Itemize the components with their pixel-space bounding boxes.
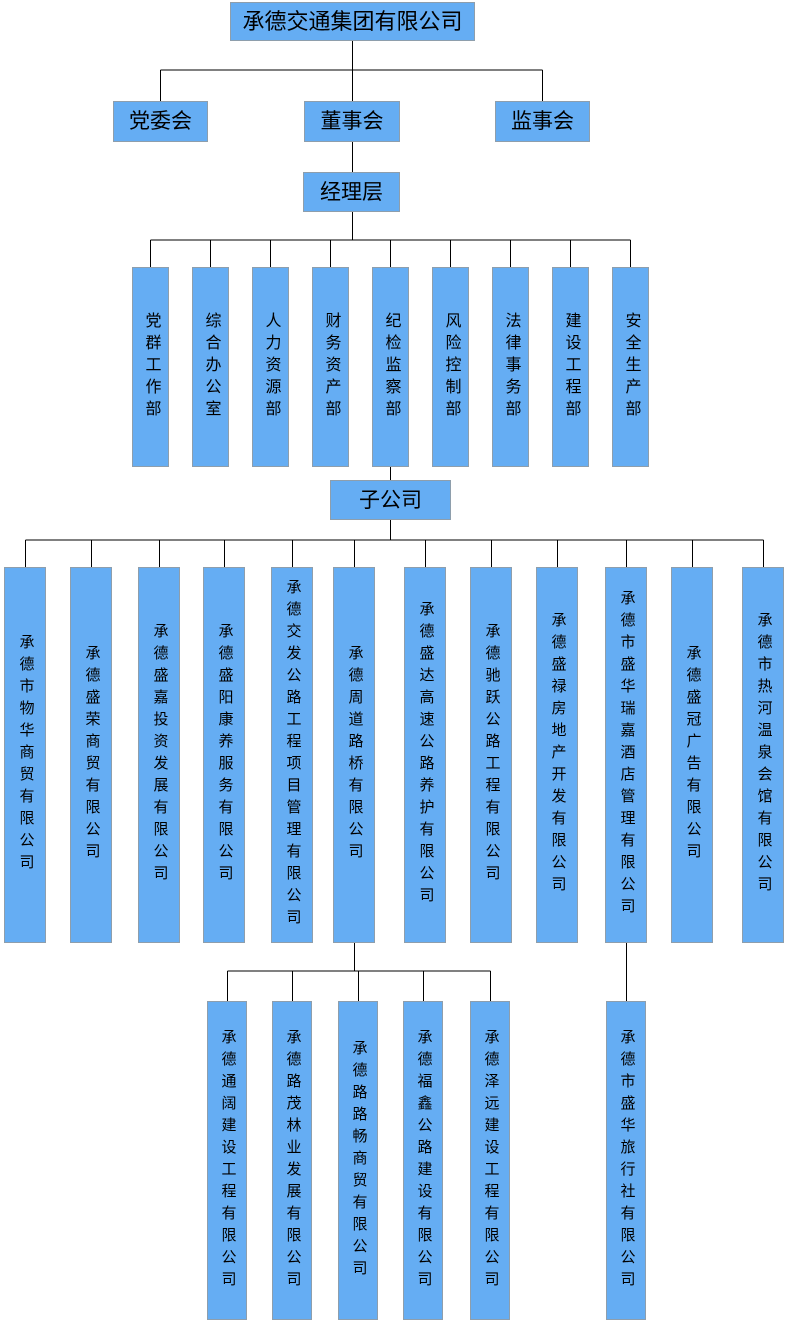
- org-node-dept-finance-assets: 财务资产部: [312, 267, 349, 467]
- org-chart-canvas: 承德交通集团有限公司 党委会 董事会 监事会 经理层 党群工作部 综合办公室 人…: [0, 0, 802, 1322]
- org-node-sub-zhoudao-road-bridge: 承德周道路桥有限公司: [333, 567, 375, 943]
- org-node-sub-shengguan-advertising: 承德盛冠广告有限公司: [671, 567, 713, 943]
- org-node-management: 经理层: [303, 172, 400, 212]
- org-node-sub-shengrong-trading: 承德盛荣商贸有限公司: [70, 567, 112, 943]
- org-node-sub-wuhua-trading: 承德市物华商贸有限公司: [4, 567, 46, 943]
- org-node-party-committee: 党委会: [113, 101, 208, 142]
- org-node-dept-discipline-inspection: 纪检监察部: [372, 267, 409, 467]
- org-node-child-lumao-forestry: 承德路茂林业发展有限公司: [272, 1001, 312, 1320]
- org-node-dept-general-office: 综合办公室: [192, 267, 229, 467]
- org-node-dept-human-resources: 人力资源部: [252, 267, 289, 467]
- org-node-supervisory-board: 监事会: [495, 101, 590, 142]
- org-node-dept-legal-affairs: 法律事务部: [492, 267, 529, 467]
- org-node-child-tongkuo-construction: 承德通阔建设工程有限公司: [207, 1001, 247, 1320]
- org-node-board-of-directors: 董事会: [304, 101, 400, 142]
- org-node-dept-risk-control: 风险控制部: [432, 267, 469, 467]
- org-node-sub-shenghua-ruijia-hotel: 承德市盛华瑞嘉酒店管理有限公司: [605, 567, 647, 943]
- org-node-sub-shenglu-real-estate: 承德盛禄房地产开发有限公司: [536, 567, 578, 943]
- org-node-root: 承德交通集团有限公司: [230, 2, 475, 41]
- org-node-child-fuxin-highway-construction: 承德福鑫公路建设有限公司: [403, 1001, 443, 1320]
- org-node-child-zeyuan-construction: 承德泽远建设工程有限公司: [470, 1001, 510, 1320]
- org-node-sub-shengjia-investment: 承德盛嘉投资发展有限公司: [138, 567, 180, 943]
- org-node-dept-work-safety: 安全生产部: [612, 267, 649, 467]
- org-node-subsidiaries-header: 子公司: [330, 480, 451, 520]
- org-node-sub-jiaofa-highway-project-mgmt: 承德交发公路工程项目管理有限公司: [271, 567, 313, 943]
- org-node-dept-party-mass-work: 党群工作部: [132, 267, 169, 467]
- org-node-sub-shengda-expressway-maintenance: 承德盛达高速公路养护有限公司: [404, 567, 446, 943]
- org-node-sub-chiyue-highway-engineering: 承德驰跃公路工程有限公司: [470, 567, 512, 943]
- org-node-sub-shengyang-wellness: 承德盛阳康养服务有限公司: [203, 567, 245, 943]
- org-node-dept-construction-engineering: 建设工程部: [552, 267, 589, 467]
- org-node-child-shenghua-travel-agency: 承德市盛华旅行社有限公司: [606, 1001, 646, 1320]
- org-node-sub-rehe-hotspring-hall: 承德市热河温泉会馆有限公司: [742, 567, 784, 943]
- org-node-child-luluchang-trading: 承德路路畅商贸有限公司: [338, 1001, 378, 1320]
